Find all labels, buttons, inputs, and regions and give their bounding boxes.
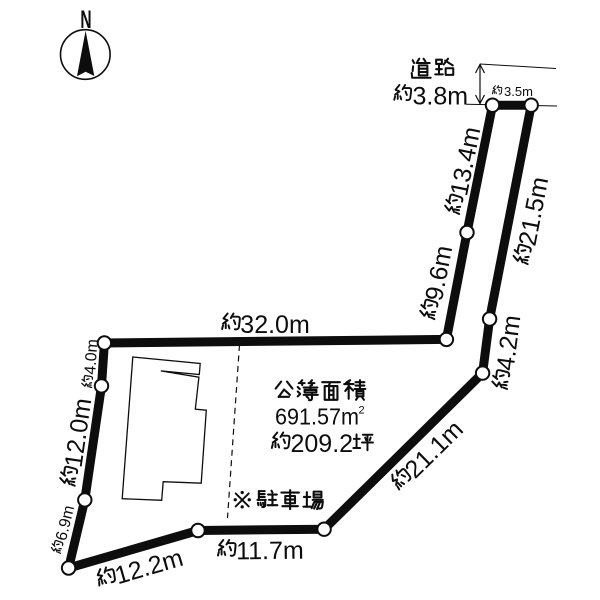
svg-text:209.2: 209.2 (291, 430, 354, 458)
svg-text:4.2m: 4.2m (492, 314, 527, 373)
svg-text:2: 2 (359, 405, 365, 417)
svg-text:11.7m: 11.7m (236, 537, 304, 566)
svg-text:32.0m: 32.0m (240, 311, 309, 339)
svg-text:691.57m: 691.57m (275, 404, 359, 430)
svg-text:3.8m: 3.8m (413, 83, 469, 111)
svg-text:4.0m: 4.0m (82, 339, 101, 376)
svg-text:3.5m: 3.5m (504, 84, 533, 99)
